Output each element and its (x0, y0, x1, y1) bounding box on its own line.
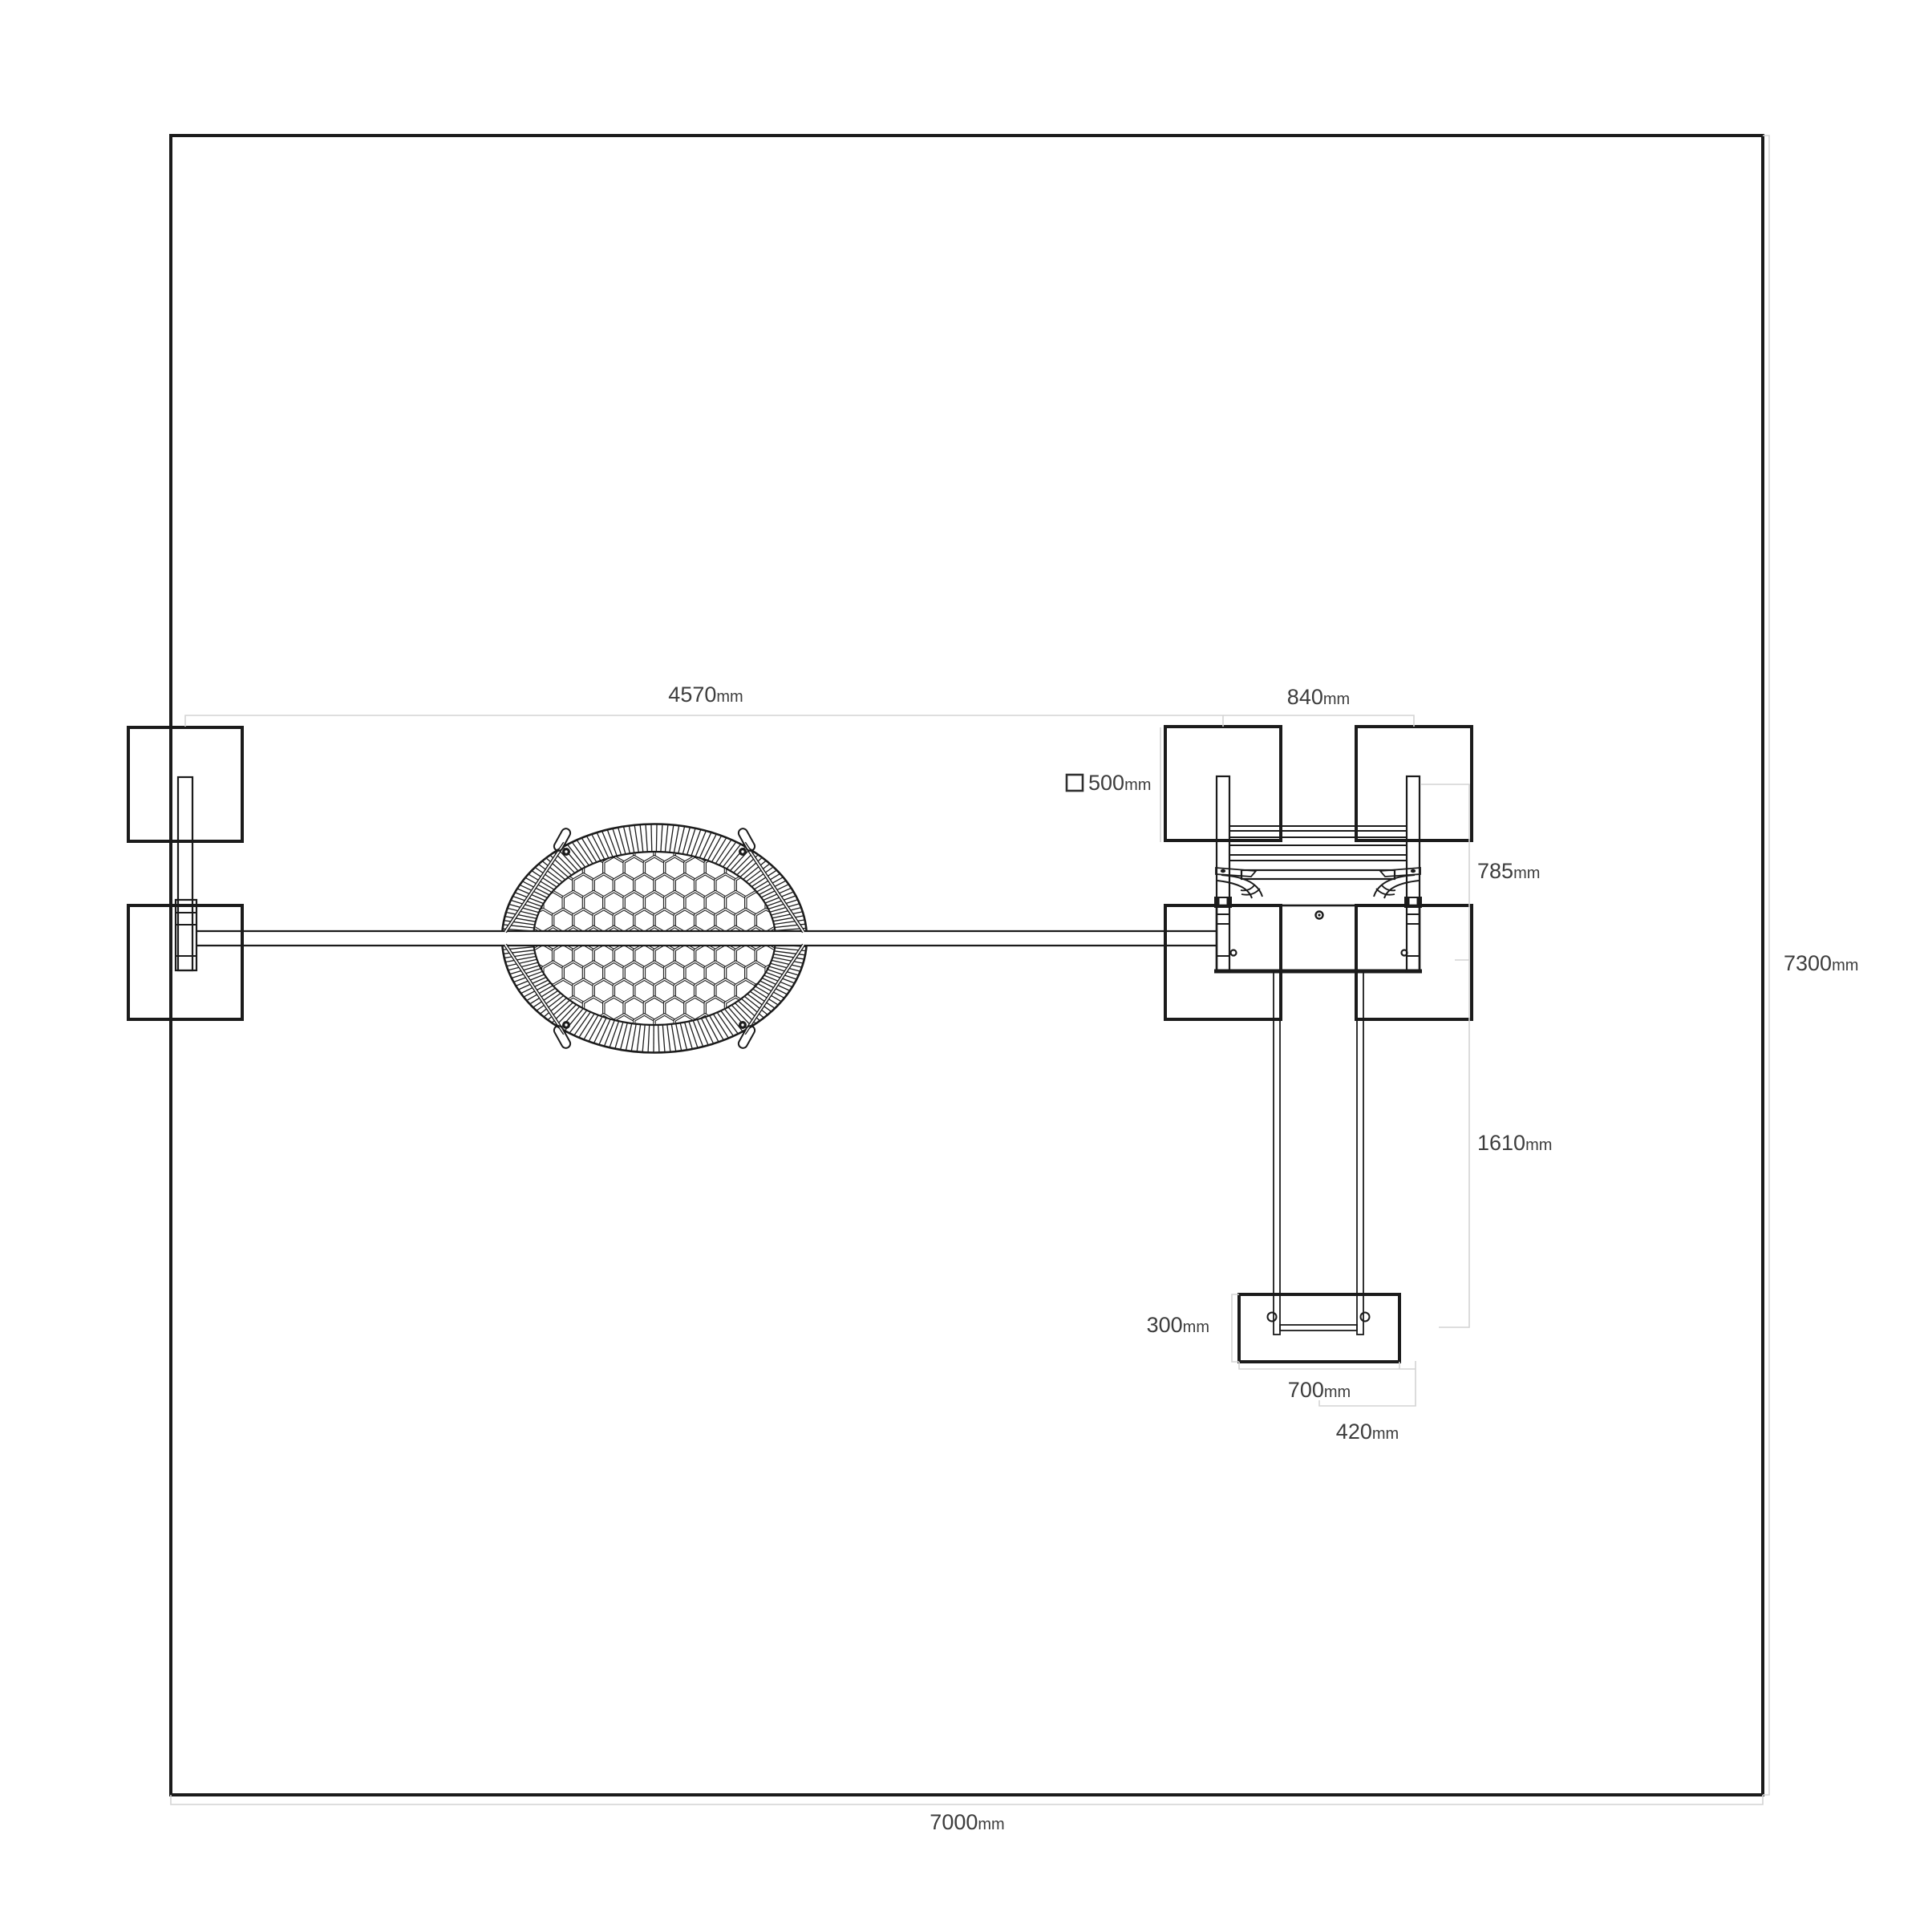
dim-line-post-spacing (1223, 715, 1414, 727)
footing-pad (128, 727, 242, 841)
left-support-frame (128, 727, 242, 1019)
footing-pad (1165, 727, 1281, 840)
footing-pad (1356, 905, 1472, 1019)
dim-pad-depth-label: 300mm (1147, 1313, 1209, 1337)
svg-text:500mm: 500mm (1088, 771, 1151, 795)
shackle-bottom-left (553, 1024, 572, 1050)
dim-beam-span-label: 4570mm (668, 682, 743, 707)
square-footing-icon (1067, 775, 1083, 791)
drop-rail-right (1357, 972, 1363, 1335)
dim-drop-length-label: 1610mm (1477, 1131, 1552, 1155)
left-post (178, 777, 192, 970)
dim-site-width-label: 7000mm (930, 1810, 1004, 1834)
site-boundary (171, 136, 1763, 1795)
pad-bolt-left (1268, 1313, 1277, 1322)
bottom-footing-pad (1239, 1294, 1399, 1362)
technical-drawing-canvas: 4570mm 840mm 500mm 785mm 1610mm 300mm 70… (0, 0, 1932, 1932)
dim-pad-width-label: 700mm (1288, 1378, 1351, 1402)
shackle-top-left (553, 827, 572, 853)
plan-drawing: 4570mm 840mm 500mm 785mm 1610mm 300mm 70… (0, 0, 1932, 1932)
drop-rail-left (1274, 972, 1280, 1335)
dim-line-frame-depth-and-drop (1421, 784, 1469, 1327)
ladder-rungs (1229, 826, 1407, 861)
dim-frame-depth-label: 785mm (1477, 859, 1540, 883)
dim-post-spacing-label: 840mm (1287, 685, 1350, 709)
pad-bolt-right (1361, 1313, 1370, 1322)
dim-footing-size-label: 500mm (1067, 771, 1151, 795)
swing-hanger-left (1214, 868, 1262, 908)
footing-pad (1356, 727, 1472, 840)
dim-site-height-label: 7300mm (1784, 951, 1858, 975)
cross-bar (1241, 870, 1395, 879)
shackle-top-right (737, 827, 756, 853)
footing-pad (1165, 905, 1281, 1019)
pad-cross-bar (1280, 1325, 1357, 1331)
footing-pad (128, 905, 242, 1019)
swing-hanger-right (1374, 868, 1422, 908)
dim-pad-offset-label: 420mm (1336, 1420, 1399, 1444)
main-beam (196, 931, 1217, 946)
right-portal-frame (1165, 727, 1472, 1362)
dimension-lines (171, 136, 1769, 1804)
ladder-drop-assembly (1239, 972, 1399, 1362)
dim-line-beam-span (185, 715, 1223, 727)
platform-bolts (1231, 912, 1407, 956)
